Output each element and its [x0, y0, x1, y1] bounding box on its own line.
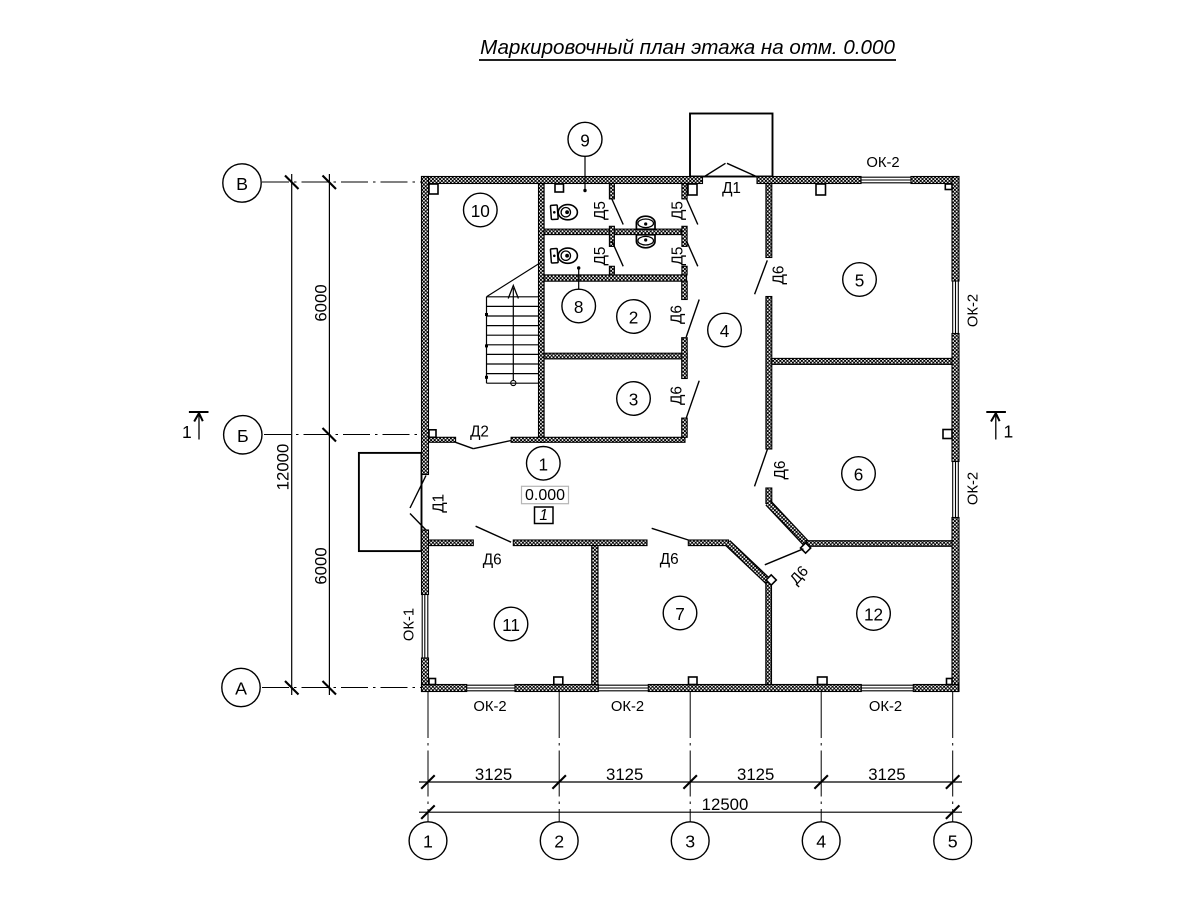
svg-text:Д5: Д5: [670, 247, 687, 266]
svg-text:3125: 3125: [606, 765, 643, 784]
svg-text:12000: 12000: [274, 444, 293, 491]
svg-text:3: 3: [685, 832, 695, 852]
svg-text:Д5: Д5: [670, 201, 687, 220]
svg-text:Д6: Д6: [772, 461, 789, 480]
svg-text:Д6: Д6: [668, 305, 685, 324]
svg-text:3125: 3125: [737, 765, 774, 784]
svg-text:9: 9: [580, 130, 590, 150]
svg-text:Маркировочный план этажа на от: Маркировочный план этажа на отм. 0.000: [480, 36, 895, 59]
svg-text:10: 10: [471, 201, 490, 221]
svg-text:5: 5: [948, 832, 958, 852]
svg-text:А: А: [235, 679, 247, 699]
svg-text:ОК-2: ОК-2: [611, 699, 644, 715]
svg-text:3125: 3125: [868, 765, 905, 784]
svg-text:Д2: Д2: [470, 424, 489, 441]
svg-text:1: 1: [539, 507, 548, 524]
svg-text:4: 4: [720, 321, 730, 341]
svg-text:1: 1: [423, 832, 433, 852]
svg-text:0.000: 0.000: [525, 487, 565, 504]
svg-text:ОК-1: ОК-1: [402, 608, 418, 641]
svg-text:Д1: Д1: [722, 180, 741, 197]
svg-text:ОК-2: ОК-2: [966, 472, 982, 505]
svg-text:1: 1: [1004, 422, 1014, 442]
svg-text:2: 2: [554, 832, 564, 852]
svg-text:Д5: Д5: [592, 247, 609, 266]
svg-text:6000: 6000: [311, 284, 330, 321]
svg-text:Б: Б: [237, 426, 249, 446]
svg-text:3125: 3125: [475, 765, 512, 784]
svg-text:6: 6: [854, 465, 864, 485]
svg-text:6000: 6000: [311, 547, 330, 584]
svg-text:ОК-2: ОК-2: [866, 155, 899, 171]
svg-text:Д6: Д6: [668, 386, 685, 405]
svg-text:ОК-2: ОК-2: [869, 699, 902, 715]
svg-text:Д6: Д6: [770, 266, 787, 285]
svg-text:Д6: Д6: [483, 552, 502, 569]
svg-text:Д6: Д6: [660, 551, 679, 568]
svg-text:В: В: [236, 174, 248, 194]
svg-text:Д1: Д1: [430, 494, 447, 513]
svg-text:ОК-2: ОК-2: [473, 699, 506, 715]
svg-text:12: 12: [864, 605, 883, 625]
svg-text:8: 8: [574, 297, 584, 317]
svg-text:1: 1: [182, 422, 192, 442]
svg-text:2: 2: [629, 308, 639, 328]
svg-text:7: 7: [675, 604, 685, 624]
svg-text:4: 4: [816, 832, 826, 852]
svg-text:1: 1: [539, 454, 549, 474]
svg-text:5: 5: [855, 271, 865, 291]
svg-text:ОК-2: ОК-2: [966, 294, 982, 327]
svg-text:11: 11: [502, 615, 520, 635]
svg-text:12500: 12500: [702, 795, 749, 814]
svg-text:3: 3: [629, 390, 639, 410]
svg-text:Д5: Д5: [592, 201, 609, 220]
